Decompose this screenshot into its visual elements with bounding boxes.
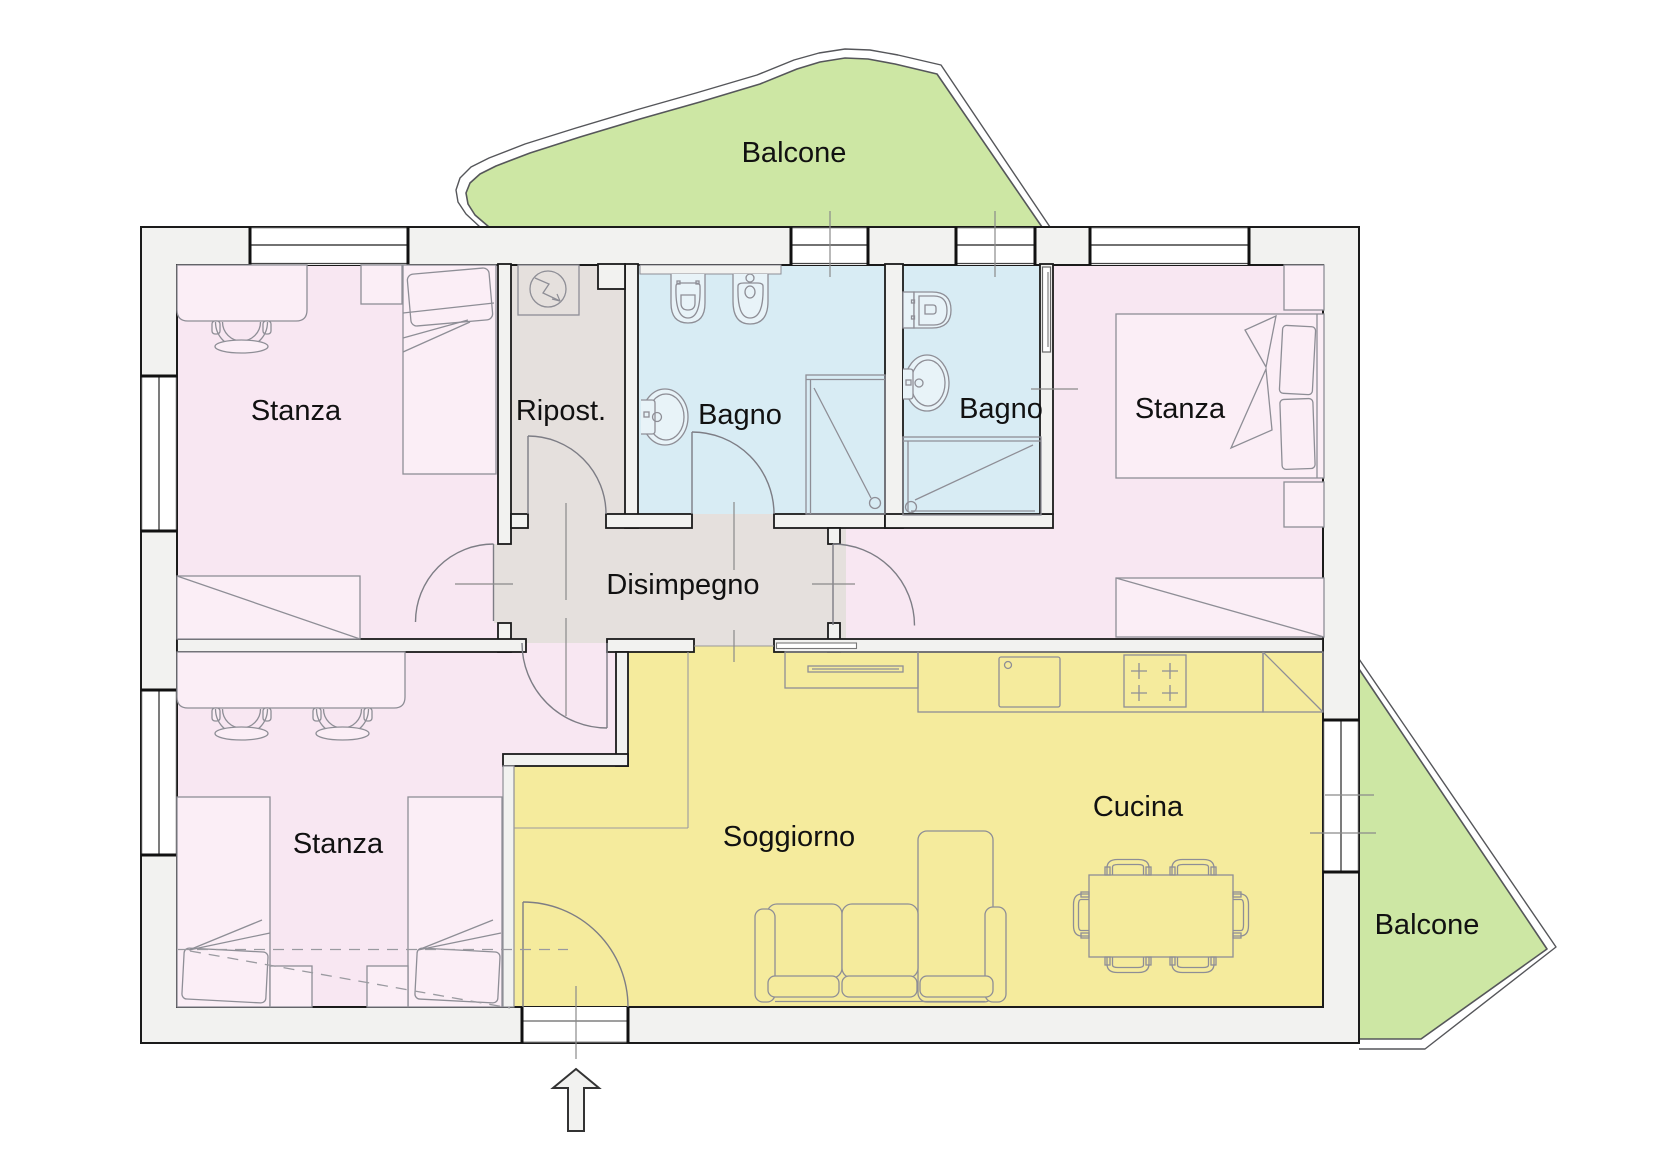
svg-text:Balcone: Balcone	[1375, 909, 1480, 941]
svg-text:Cucina: Cucina	[1093, 791, 1184, 823]
svg-text:Stanza: Stanza	[293, 828, 384, 860]
svg-text:Ripost.: Ripost.	[516, 395, 606, 427]
svg-text:Stanza: Stanza	[1135, 393, 1226, 425]
svg-text:Bagno: Bagno	[959, 393, 1043, 425]
svg-text:Bagno: Bagno	[698, 399, 782, 431]
svg-text:Soggiorno: Soggiorno	[723, 821, 855, 853]
svg-text:Balcone: Balcone	[742, 137, 847, 169]
svg-text:Disimpegno: Disimpegno	[606, 569, 759, 601]
svg-text:Stanza: Stanza	[251, 395, 342, 427]
